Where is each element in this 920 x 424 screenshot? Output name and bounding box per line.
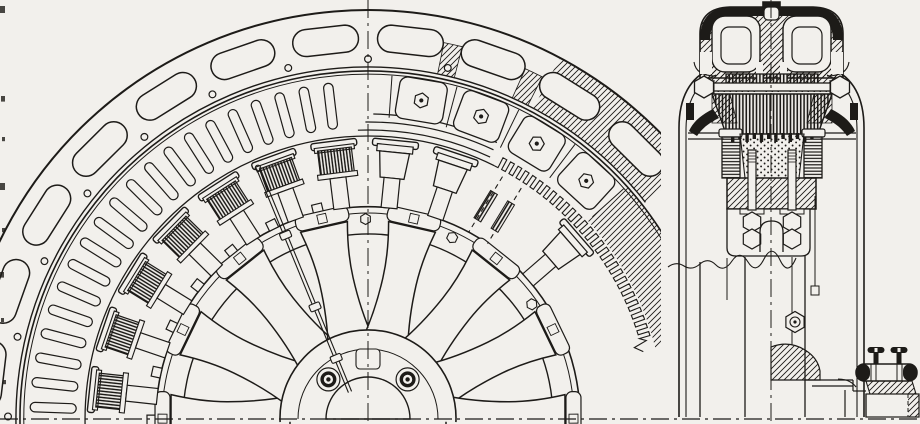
stator-clamp-segment — [394, 76, 448, 125]
coil-flange — [719, 129, 742, 137]
clamp-wedge — [866, 381, 916, 394]
frame-bolt — [141, 133, 148, 140]
field-coil — [804, 137, 822, 178]
frame-bolt — [14, 333, 21, 340]
stud-nut — [783, 229, 800, 249]
scan-speck — [0, 272, 4, 278]
frame-pad — [686, 103, 694, 120]
field-coil — [722, 137, 740, 178]
hub-bolt — [396, 368, 419, 391]
scan-speck — [1, 318, 4, 322]
frame-bolt — [285, 65, 292, 72]
frame-pad — [850, 103, 858, 120]
drawing-page: Revolving-field alternator: half end ele… — [0, 0, 920, 424]
bolt-nut — [831, 76, 850, 98]
frame-bolt — [84, 190, 91, 197]
frame-bolt — [209, 91, 216, 98]
frame-bolt — [444, 65, 451, 72]
coil-flange — [802, 129, 825, 137]
scan-speck — [0, 183, 5, 190]
scan-speck — [0, 6, 5, 13]
field-pole-section — [719, 129, 825, 178]
rim-bolt — [361, 213, 371, 224]
scan-speck — [2, 228, 5, 232]
alternator-sectional-drawing: Revolving-field alternator: half end ele… — [0, 0, 920, 424]
frame-bolt — [41, 258, 48, 265]
stud-nut — [743, 229, 760, 249]
pole-base — [330, 177, 350, 210]
rod-collar — [811, 286, 819, 295]
stator-vent-duct — [30, 402, 76, 413]
scan-speck — [2, 137, 5, 141]
rim-key-tab — [151, 366, 162, 378]
side-notch — [700, 52, 712, 74]
bolt-nut — [695, 76, 714, 98]
through-bolt — [702, 83, 842, 91]
scan-speck — [3, 380, 6, 384]
pole-base — [126, 385, 159, 404]
side-notch — [831, 52, 843, 74]
hub-bolt — [317, 368, 340, 391]
scan-speck — [1, 96, 5, 102]
